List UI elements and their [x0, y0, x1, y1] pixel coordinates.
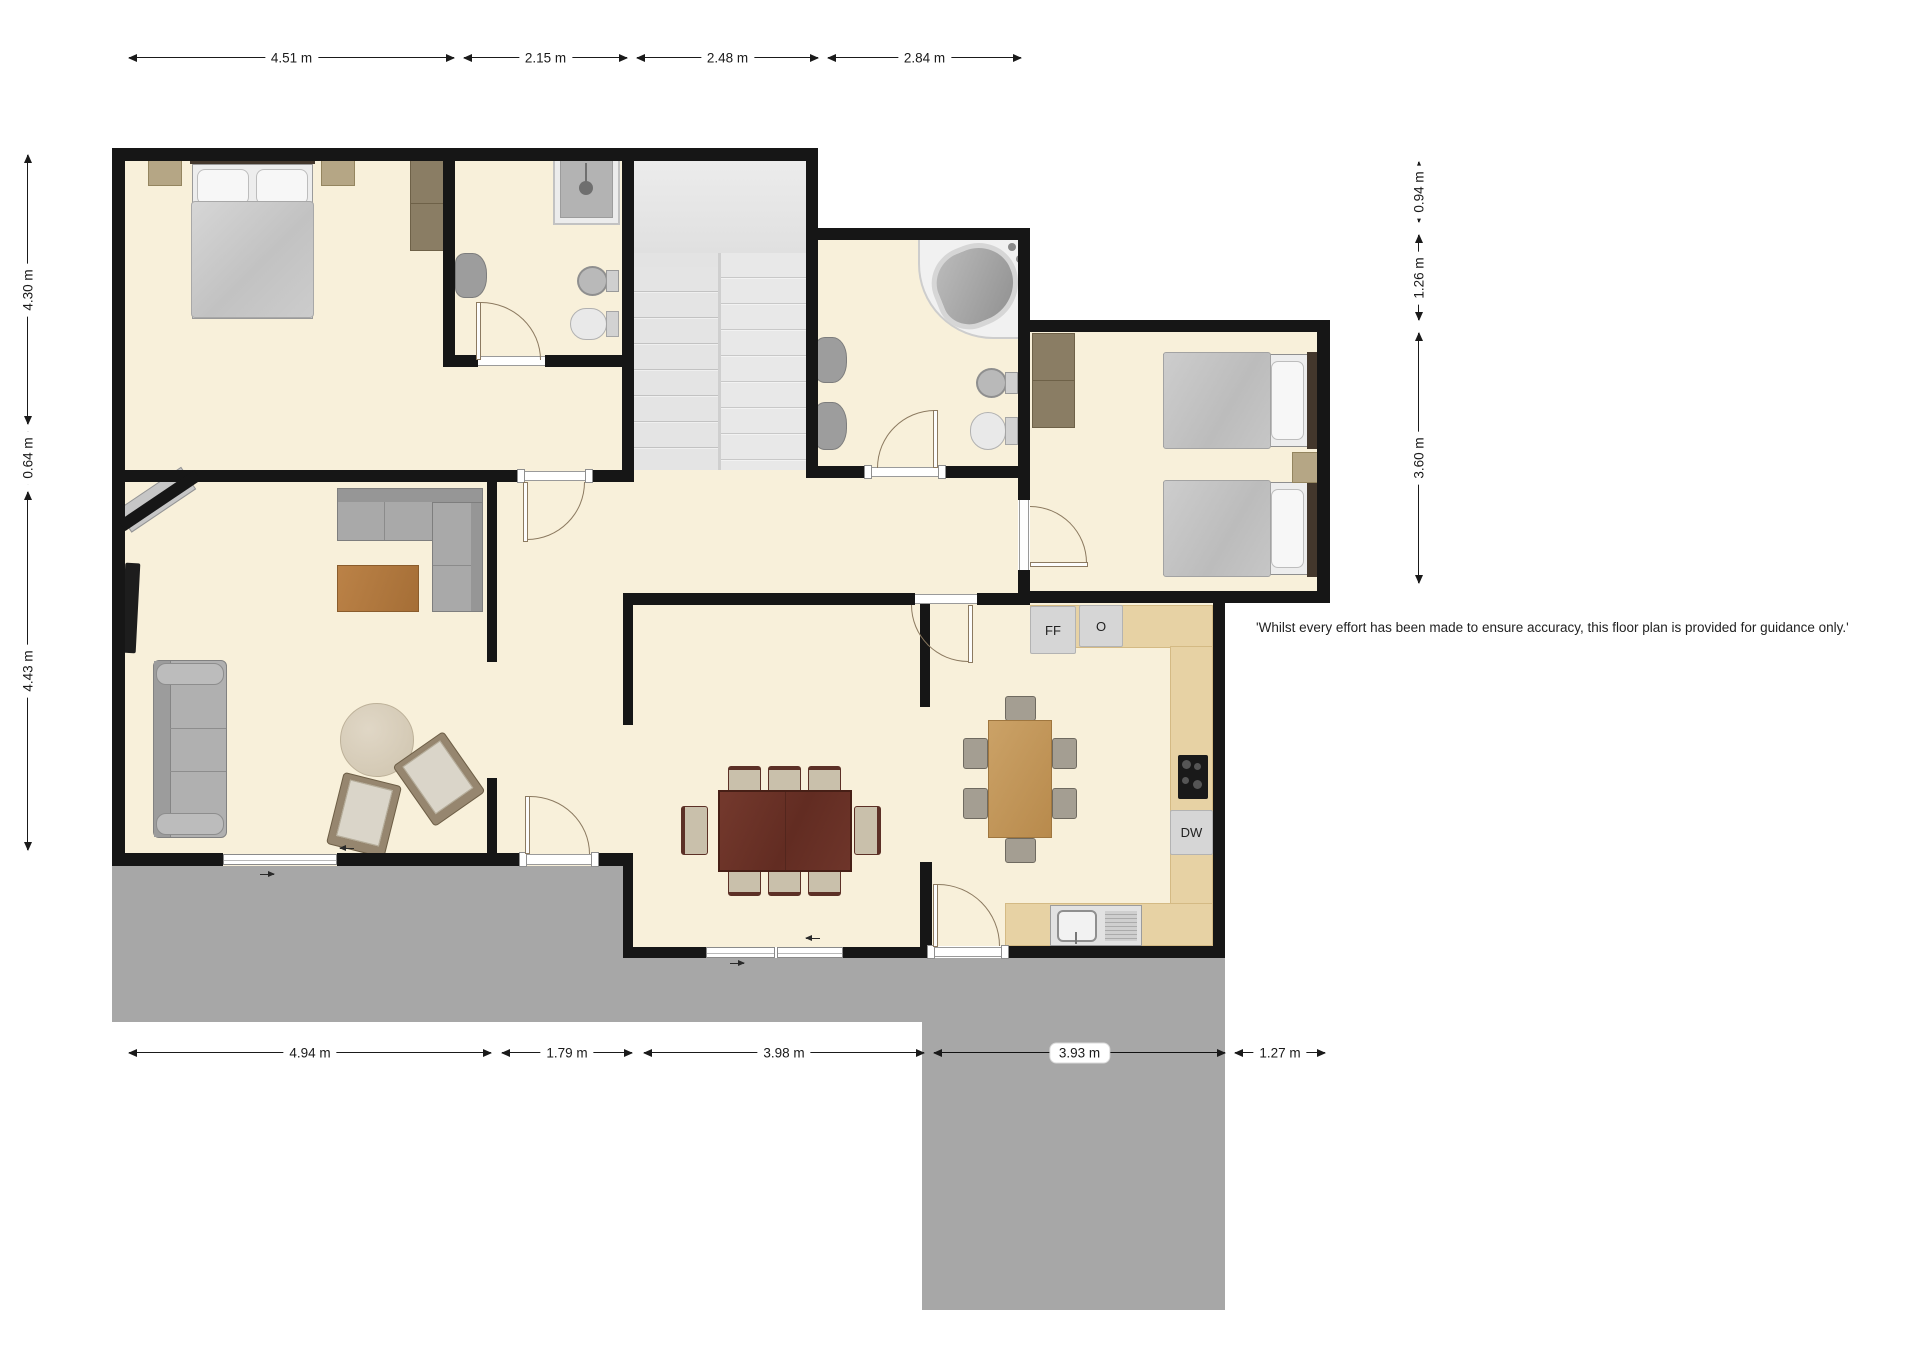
wall-hall-living-upper: [487, 478, 497, 662]
kitchen-chair: [963, 788, 988, 819]
bed-pillow: [256, 169, 308, 205]
arrow-icon: [1415, 332, 1423, 341]
oven: O: [1079, 605, 1123, 647]
bed-pillow: [197, 169, 249, 205]
dimension-label: 0.94 m: [1411, 165, 1428, 218]
entry-arrow: [340, 848, 354, 849]
wall-bathroom2-bottom-a: [806, 466, 870, 478]
hob: [1178, 755, 1208, 799]
entry-arrow: [806, 938, 820, 939]
window-glass-line: [707, 953, 774, 954]
wall-dining-left-upper: [623, 605, 633, 725]
bidet-tank: [606, 311, 619, 337]
dining-chair: [728, 869, 761, 896]
kitchen-chair: [1052, 738, 1077, 769]
entry-arrow: [260, 874, 274, 875]
sofa-seat-line: [170, 771, 226, 772]
sink-drainer: [1105, 911, 1137, 941]
dimension-right-1: 0.94 m: [1418, 162, 1419, 222]
single-bed: [1163, 480, 1318, 577]
sofa-right-section: [432, 502, 483, 612]
armchair-cushion: [336, 780, 393, 847]
dimension-bottom-2: 1.79 m: [502, 1052, 632, 1053]
bathroom2-toilet: [976, 368, 1018, 398]
disclaimer-text: 'Whilst every effort has been made to en…: [1256, 620, 1849, 635]
bed-pillow: [1271, 489, 1304, 568]
patio-right: [922, 958, 1225, 1310]
wall-exterior-left: [112, 148, 125, 866]
arrow-icon: [339, 845, 346, 851]
floor-plan: FF O DW: [0, 0, 1920, 1358]
door-jamb: [591, 852, 599, 867]
wall-bedroom-hall-stub: [587, 470, 634, 482]
sofa-back: [154, 661, 171, 837]
wall-twin-top: [1018, 320, 1330, 332]
arrow-icon: [268, 871, 275, 877]
dimension-top-4: 2.84 m: [828, 57, 1021, 58]
arrow-icon: [916, 1049, 925, 1057]
door-leaf: [968, 605, 973, 663]
arrow-icon: [1234, 1049, 1243, 1057]
fridge-freezer-label: FF: [1045, 623, 1061, 638]
dimension-label: 3.98 m: [757, 1045, 810, 1062]
dining-table: [718, 790, 852, 872]
dimension-left-1: 4.30 m: [27, 155, 28, 424]
toilet-bowl: [577, 266, 608, 296]
wall-bathroom2-bottom-b: [940, 466, 1030, 478]
sink-basin: [1057, 910, 1097, 942]
fridge-freezer: FF: [1030, 606, 1076, 654]
wall-kitchen-top-stub: [977, 593, 1030, 605]
arrow-icon: [1415, 234, 1423, 243]
dimension-top-1: 4.51 m: [129, 57, 454, 58]
dimension-label: 2.48 m: [701, 50, 754, 67]
door-jamb: [517, 469, 525, 483]
toilet-bowl: [976, 368, 1007, 398]
wall-kitchen-right: [1213, 603, 1225, 958]
dimension-label: 4.43 m: [20, 644, 37, 697]
wall-bathroom2-right: [1018, 228, 1030, 500]
dining-chair: [854, 806, 881, 855]
front-door: [525, 854, 593, 865]
patio-middle: [623, 958, 922, 1022]
wall-twin-bottom: [1018, 591, 1330, 603]
bathroom2-sink: [815, 402, 847, 450]
arrow-icon: [619, 54, 628, 62]
arrow-icon: [128, 54, 137, 62]
dimension-label: 0.64 m: [20, 431, 37, 484]
bathroom2-bidet: [970, 412, 1018, 450]
dimension-label: 3.60 m: [1411, 431, 1428, 484]
bidet-body: [570, 308, 607, 340]
hob-ring: [1194, 763, 1201, 770]
ensuite-sink: [455, 253, 487, 298]
bathroom2-sink: [815, 337, 847, 383]
toilet-cistern: [1005, 372, 1018, 394]
wall-dining-bottom-b: [843, 947, 933, 958]
nightstand: [1292, 452, 1318, 483]
arrow-icon: [624, 1049, 633, 1057]
bidet-body: [970, 412, 1006, 450]
ensuite-toilet: [577, 266, 619, 296]
arrow-icon: [1217, 1049, 1226, 1057]
arrow-icon: [24, 491, 32, 500]
dimension-bottom-1: 4.94 m: [129, 1052, 491, 1053]
kitchen-chair: [1052, 788, 1077, 819]
arrow-icon: [446, 54, 455, 62]
hob-ring: [1193, 780, 1202, 789]
wall-kitchen-bottom: [1003, 946, 1225, 958]
arrow-icon: [827, 54, 836, 62]
wardrobe-door-line: [1033, 380, 1074, 381]
arrow-icon: [128, 1049, 137, 1057]
arrow-icon: [1415, 312, 1423, 321]
arrow-icon: [1013, 54, 1022, 62]
arrow-icon: [805, 935, 812, 941]
door-jamb: [938, 465, 946, 479]
shower-hose: [585, 163, 587, 183]
sofa-armrest: [156, 813, 224, 835]
kitchen-chair: [1005, 696, 1036, 721]
arrow-icon: [933, 1049, 942, 1057]
door-kitchen-hall: [915, 594, 977, 604]
window-living: [223, 854, 337, 865]
door-jamb: [927, 945, 935, 959]
arrow-icon: [643, 1049, 652, 1057]
dimension-right-3: 3.60 m: [1418, 333, 1419, 583]
arrow-icon: [810, 54, 819, 62]
dishwasher-label: DW: [1181, 825, 1203, 840]
dimension-label: 1.26 m: [1411, 251, 1428, 304]
bed-pillow: [1271, 361, 1304, 440]
wall-dining-top: [623, 593, 915, 605]
table-split-line: [785, 792, 786, 870]
oven-label: O: [1096, 619, 1106, 634]
arrow-icon: [24, 842, 32, 851]
arrow-icon: [1415, 575, 1423, 584]
dimension-top-2: 2.15 m: [464, 57, 627, 58]
shower-head-icon: [579, 181, 593, 195]
window-glass-line: [778, 953, 842, 954]
door-twin-bedroom: [1019, 500, 1029, 570]
arrow-icon: [636, 54, 645, 62]
nightstand: [148, 158, 182, 186]
single-bed: [1163, 352, 1318, 449]
wall-exterior-top: [112, 148, 818, 161]
dimension-label: 4.94 m: [283, 1045, 336, 1062]
dimension-label: 1.27 m: [1253, 1045, 1306, 1062]
dining-chair: [768, 766, 801, 793]
dimension-left-3: 4.43 m: [27, 492, 28, 850]
dining-chair: [808, 766, 841, 793]
stair-landing: [634, 160, 806, 253]
wall-ensuite-bottom-b: [545, 355, 634, 367]
kitchen-chair: [963, 738, 988, 769]
ensuite-bidet: [570, 308, 619, 340]
wall-hall-living-lower: [487, 778, 497, 856]
dimension-right-2: 1.26 m: [1418, 235, 1419, 320]
arrow-icon: [1317, 1049, 1326, 1057]
wall-living-bottom-c: [593, 853, 633, 866]
dimension-top-3: 2.48 m: [637, 57, 818, 58]
stair-flight-left: [634, 267, 718, 470]
dimension-label: 2.84 m: [898, 50, 951, 67]
sink-tap-icon: [1075, 932, 1077, 944]
dining-chair: [808, 869, 841, 896]
wall-bathroom2-top: [806, 228, 1030, 240]
dining-chair: [681, 806, 708, 855]
sofa-seat-line: [170, 728, 226, 729]
bed-duvet: [1163, 480, 1271, 577]
arrow-icon: [463, 54, 472, 62]
arrow-icon: [24, 154, 32, 163]
bidet-tank: [1005, 417, 1018, 445]
stair-divider: [718, 253, 721, 470]
dimension-label: 4.51 m: [265, 50, 318, 67]
entry-arrow: [730, 963, 744, 964]
double-bed: [190, 153, 315, 321]
wall-living-bottom-a: [112, 853, 223, 866]
dining-chair: [728, 766, 761, 793]
wall-dining-left-lower: [623, 853, 633, 958]
wall-stairs-right: [806, 148, 818, 478]
wall-twin-right: [1317, 320, 1330, 603]
kitchen-table: [988, 720, 1052, 838]
wall-kitchen-dining-jamb: [920, 862, 932, 958]
dimension-bottom-3: 3.98 m: [644, 1052, 924, 1053]
door-bathroom2: [870, 467, 940, 477]
kitchen-sink-unit: [1050, 905, 1142, 946]
door-jamb: [585, 469, 593, 483]
dimension-bottom-5: 1.27 m: [1235, 1052, 1325, 1053]
dimension-bottom-4: 3.93 m: [934, 1052, 1225, 1053]
nightstand: [321, 158, 355, 186]
wall-dining-bottom-a: [623, 947, 708, 958]
window-dining-left: [706, 947, 775, 958]
arrow-icon: [738, 960, 745, 966]
wall-stairs-left: [622, 148, 634, 482]
staircase: [634, 160, 806, 470]
wardrobe: [1032, 333, 1075, 428]
coffee-table: [337, 565, 419, 612]
bed-duvet: [1163, 352, 1271, 449]
arrow-icon: [501, 1049, 510, 1057]
kitchen-chair: [1005, 838, 1036, 863]
dimension-label: 1.79 m: [540, 1045, 593, 1062]
shower: [553, 153, 620, 225]
arrow-icon: [483, 1049, 492, 1057]
stair-flight-right: [721, 253, 806, 470]
toilet-cistern: [606, 270, 619, 292]
door-jamb: [1001, 945, 1009, 959]
dishwasher: DW: [1170, 810, 1213, 855]
wall-ensuite-bottom-a: [443, 355, 478, 367]
dimension-left-2: 0.64 m: [27, 432, 28, 484]
window-glass-line: [224, 860, 336, 861]
sofa-armrest: [156, 663, 224, 685]
arrow-icon: [24, 416, 32, 425]
door-jamb: [519, 852, 527, 867]
wall-ensuite-left: [443, 148, 455, 367]
door-jamb: [864, 465, 872, 479]
wall-bedroom-hall: [112, 470, 523, 482]
door-bedroom: [523, 471, 587, 481]
wall-living-bottom-b: [337, 853, 525, 866]
window-dining-right: [777, 947, 843, 958]
bath-tap-icon: [1008, 243, 1016, 251]
dimension-label: 2.15 m: [519, 50, 572, 67]
dining-chair: [768, 869, 801, 896]
door-kitchen-garden: [933, 947, 1003, 957]
hob-ring: [1182, 760, 1191, 769]
dimension-label: 3.93 m: [1049, 1043, 1110, 1064]
bed-duvet: [191, 201, 314, 318]
dimension-label: 4.30 m: [20, 263, 37, 316]
sofa: [153, 660, 227, 838]
hob-ring: [1182, 777, 1189, 784]
patio-left: [112, 866, 623, 1022]
